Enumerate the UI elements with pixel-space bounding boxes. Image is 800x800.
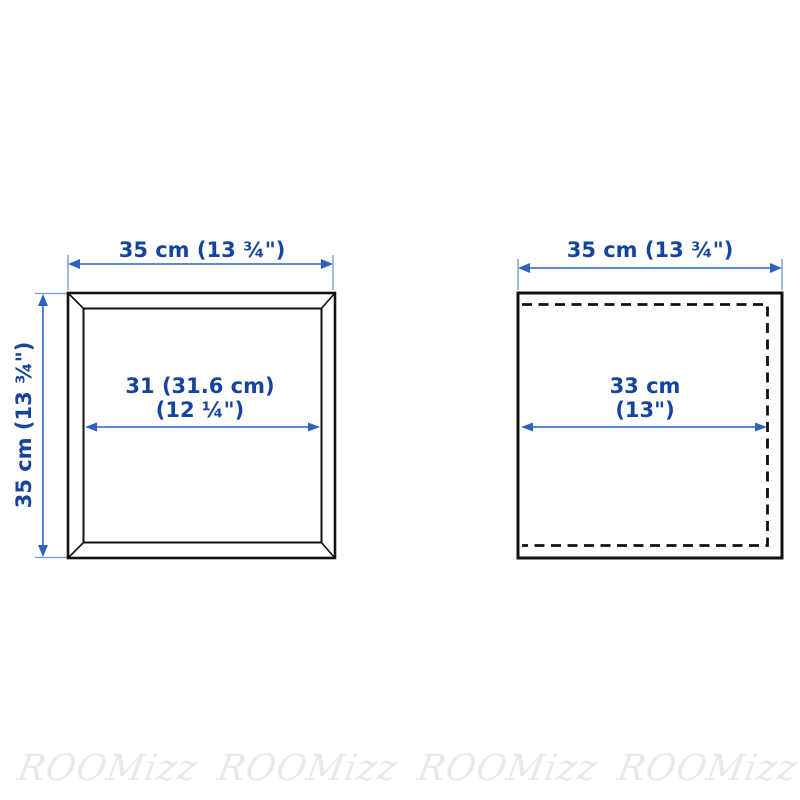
left-inner-arrowhead-right	[308, 423, 320, 432]
right-top-width-label: 35 cm (13 ¾")	[567, 238, 734, 262]
left-top-width-label: 35 cm (13 ¾")	[119, 238, 286, 262]
left-top-arrowhead-right	[321, 259, 333, 269]
dimension-diagram-page: { "colors": { "dimension_text_blue": "#1…	[0, 0, 800, 800]
left-side-arrowhead-bottom	[38, 545, 48, 557]
left-miter-top-left	[69, 294, 84, 309]
left-miter-bottom-right	[321, 542, 334, 557]
left-inner-width-label-line1: 31 (31.6 cm)	[125, 374, 274, 398]
left-diagram: 35 cm (13 ¾") 35 cm (13 ¾") 31 (31.6 cm)…	[12, 238, 335, 558]
right-inner-arrowhead-right	[755, 423, 767, 432]
watermark-logo: ROOMizz	[14, 748, 211, 789]
right-diagram: 35 cm (13 ¾") 33 cm (13")	[518, 238, 782, 558]
left-inner-frame	[84, 309, 322, 543]
left-miter-top-right	[321, 294, 334, 309]
left-side-arrowhead-top	[38, 294, 48, 306]
left-side-height-label: 35 cm (13 ¾")	[12, 342, 36, 509]
watermark-logo: ROOMizz	[614, 748, 800, 789]
left-top-arrowhead-left	[68, 259, 80, 269]
left-miter-bottom-left	[69, 542, 84, 557]
right-top-arrowhead-right	[770, 263, 782, 273]
left-inner-arrowhead-left	[85, 423, 97, 432]
watermark-logo: ROOMizz	[414, 748, 611, 789]
right-top-arrowhead-left	[518, 263, 530, 273]
watermark-logo: ROOMizz	[214, 748, 411, 789]
left-inner-width-label-line2: (12 ¼")	[156, 398, 244, 422]
right-inner-width-label-line2: (13")	[615, 398, 674, 422]
right-inner-arrowhead-left	[521, 423, 533, 432]
measurement-diagram: 35 cm (13 ¾") 35 cm (13 ¾") 31 (31.6 cm)…	[0, 0, 800, 800]
right-outer-box	[518, 293, 782, 558]
left-outer-frame	[68, 293, 335, 558]
right-inner-width-label-line1: 33 cm	[610, 374, 681, 398]
right-dashed-interior-outline	[522, 305, 768, 546]
